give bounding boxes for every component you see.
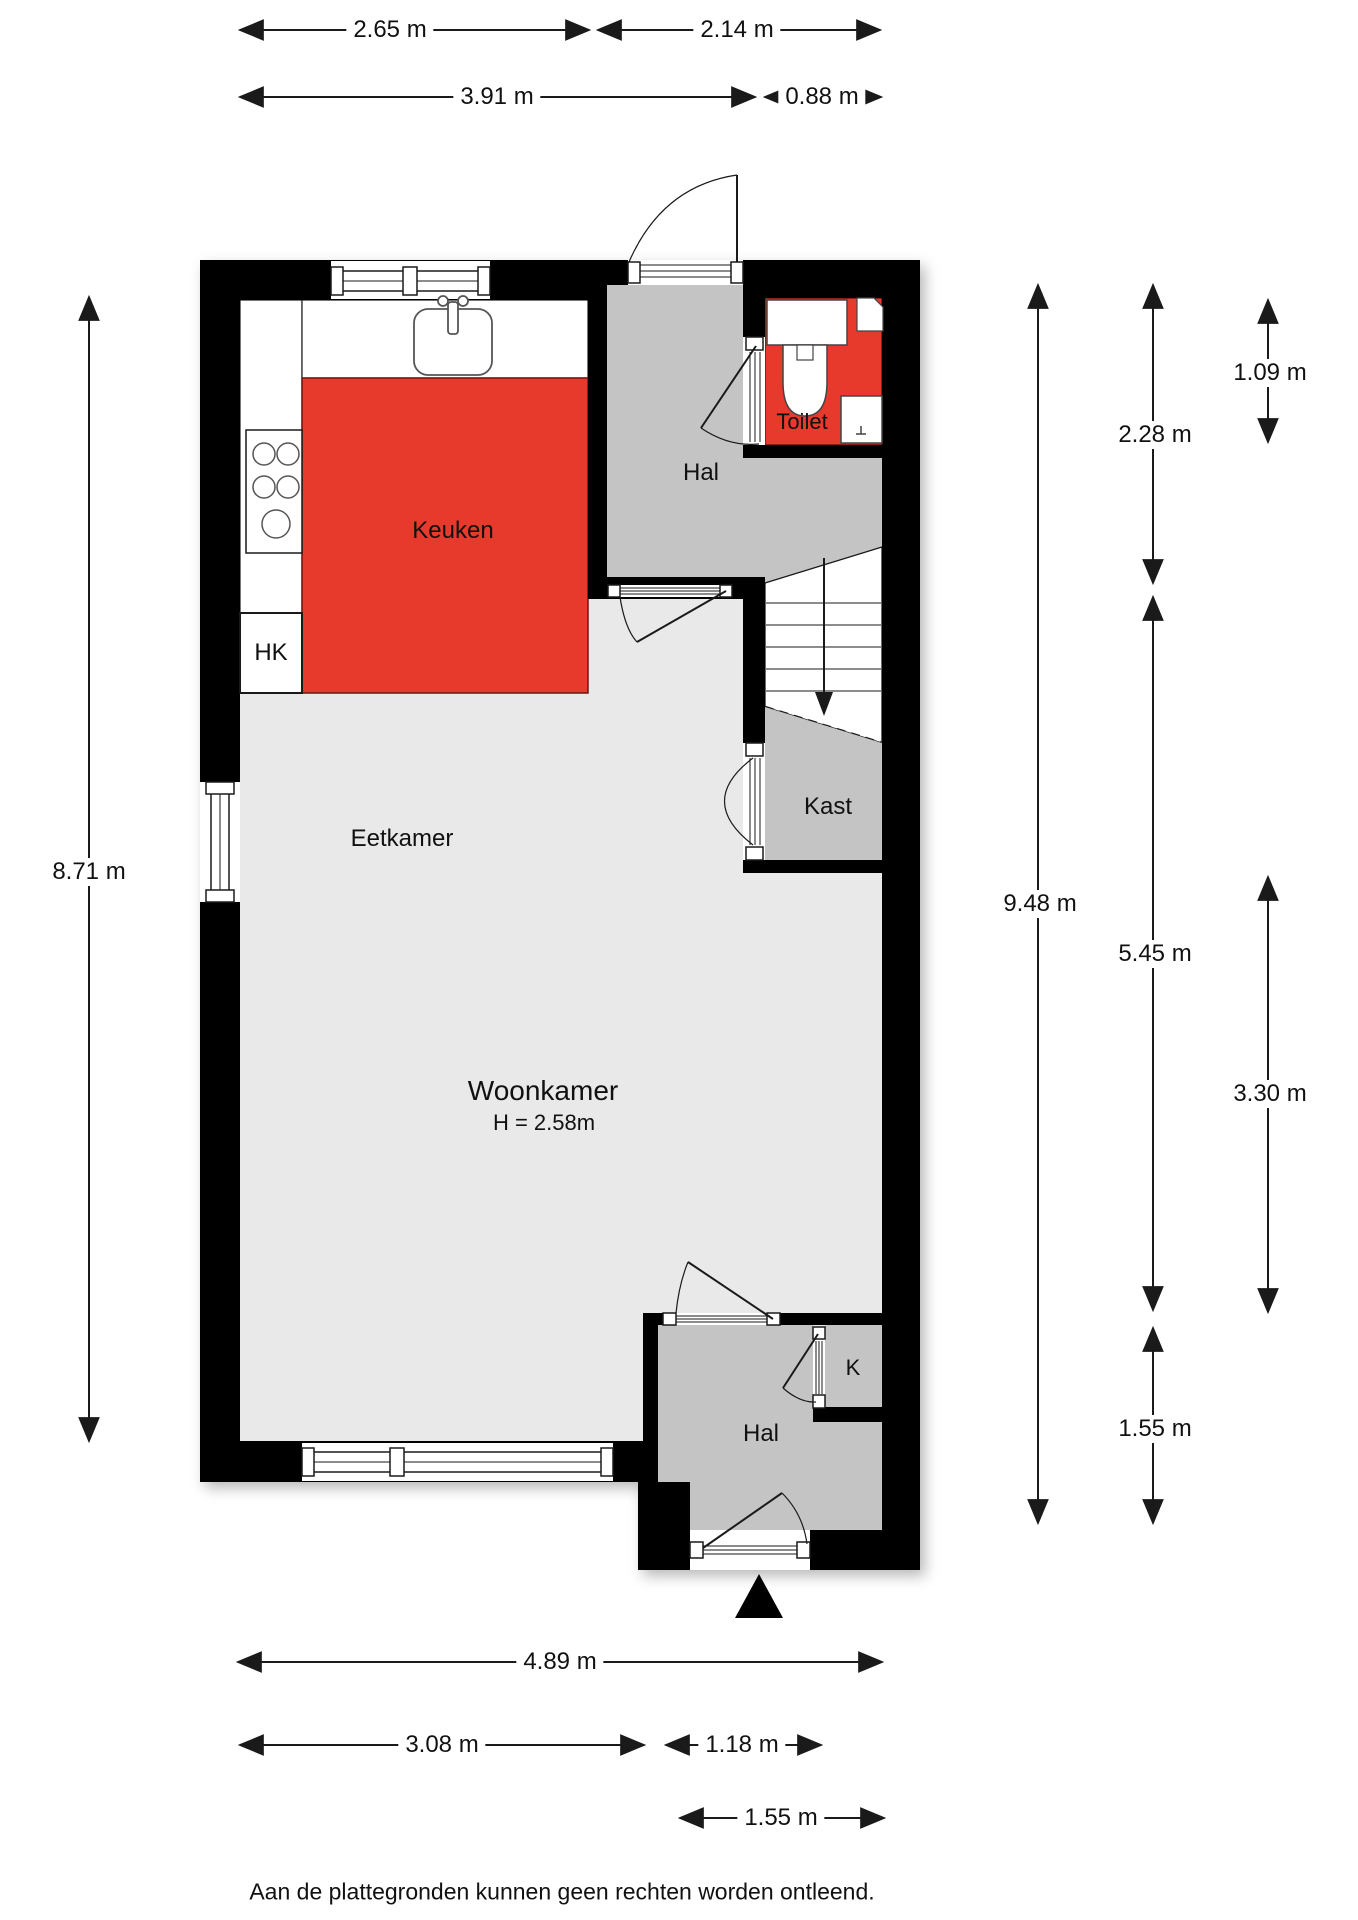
dim-right-155: 1.55 m [1111,1415,1198,1443]
room-label-hal-top: Hal [683,459,719,487]
kitchen-window [331,261,490,299]
front-door [628,175,743,285]
floorplan-canvas: 2.65 m 2.14 m 3.91 m 0.88 m 8.71 m 9.48 … [0,0,1358,1920]
dim-bottom-489: 4.89 m [516,1648,603,1676]
dim-right-948: 9.48 m [996,890,1083,918]
stove-icon [246,430,302,553]
room-label-hk: HK [254,639,287,667]
dim-right-228: 2.28 m [1111,421,1198,449]
dim-right-545: 5.45 m [1111,940,1198,968]
room-label-eetkamer: Eetkamer [351,825,454,853]
dim-left-871: 8.71 m [45,858,132,886]
dim-right-109: 1.09 m [1226,359,1313,387]
dim-bottom-155: 1.55 m [737,1804,824,1832]
dim-right-330: 3.30 m [1226,1080,1313,1108]
dim-bottom-118: 1.18 m [698,1731,785,1759]
dim-top-265: 2.65 m [346,16,433,44]
dim-top-391: 3.91 m [453,83,540,111]
toilet-sink-icon [841,396,882,443]
corner-shelf-icon [857,298,883,331]
room-label-toilet: Toilet [776,409,827,435]
room-label-kast: Kast [804,793,852,821]
room-label-ceiling-height: H = 2.58m [493,1110,595,1136]
dim-top-088: 0.88 m [778,83,865,111]
room-label-woonkamer: Woonkamer [468,1075,618,1107]
disclaimer-text: Aan de plattegronden kunnen geen rechten… [249,1879,874,1906]
entrance-marker-icon [735,1574,783,1618]
dim-top-214: 2.14 m [693,16,780,44]
room-label-hal-bottom: Hal [743,1420,779,1448]
left-window [200,782,240,902]
bottom-window [302,1443,613,1481]
room-label-keuken: Keuken [412,517,493,545]
room-label-k: K [846,1355,861,1381]
dim-bottom-308: 3.08 m [398,1731,485,1759]
